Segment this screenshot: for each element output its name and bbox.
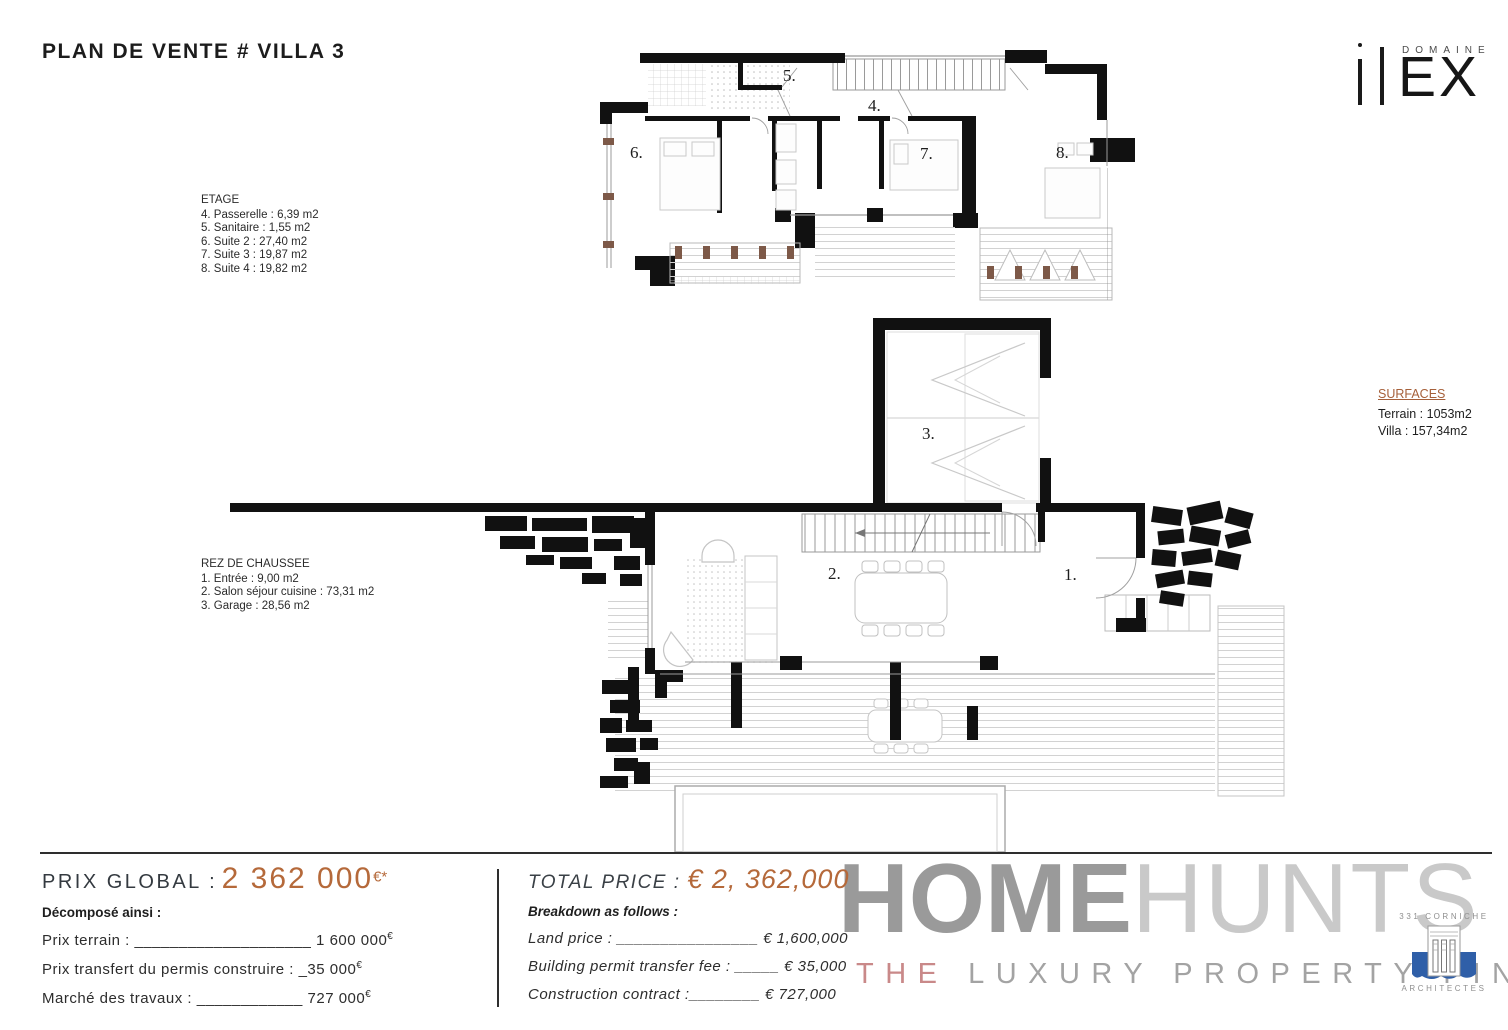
room-label-8: 8. [1056,143,1069,162]
rdc-stairs [802,514,1040,552]
breakdown-sub-heading: Breakdown as follows : [528,904,968,919]
total-price-amount: € 2, 362,000 [687,864,849,894]
room-label-2: 2. [828,564,841,583]
etage-legend-line: 7. Suite 3 : 19,87 m2 [201,249,319,263]
room-label-3: 3. [922,424,935,443]
row-label: Construction contract : [528,986,690,1003]
row-fill: ____________ [197,990,303,1007]
prix-global-currency: €* [373,869,387,886]
etage-legend: ETAGE 4. Passerelle : 6,39 m2 5. Sanitai… [201,194,319,277]
sales-plan-page: PLAN DE VENTE # VILLA 3 DOMAINE EX ETAGE… [0,0,1508,1030]
etage-legend-line: 4. Passerelle : 6,39 m2 [201,209,319,223]
surfaces-terrain: Terrain : 1053m2 [1378,406,1472,424]
rdc-lounge-furniture [664,540,777,666]
etage-balcony-left [670,243,800,284]
row-currency: € [356,960,362,971]
prix-global-amount: 2 362 000 [222,862,373,895]
corniche-building-icon [1412,924,1476,982]
surfaces-panel: SURFACES Terrain : 1053m2 Villa : 157,34… [1378,386,1472,441]
architectes-label: ARCHITECTES [1388,984,1500,993]
rdc-garage [887,332,1039,503]
prix-row-terrain: Prix terrain : ____________________ 1 60… [42,931,487,949]
row-value: 35 000 [307,961,356,978]
room-label-7: 7. [920,144,933,163]
corniche-architectes-logo: 331 CORNICHE ARCHITECTES [1388,912,1500,993]
row-currency: € [387,931,393,942]
corniche-label: 331 CORNICHE [1388,912,1500,921]
room-label-5: 5. [783,66,796,85]
row-currency: € [365,989,371,1000]
ilex-monogram-i-bar [1358,59,1362,105]
prix-global-label: PRIX GLOBAL : [42,871,217,893]
pricing-divider-vertical [497,869,499,1007]
total-price-headline: TOTAL PRICE : € 2, 362,000 [528,864,968,895]
etage-floorplan: 5. 4. 6. 7. 8. [590,28,1170,313]
page-title: PLAN DE VENTE # VILLA 3 [42,40,345,64]
price-row-construction: Construction contract :________ € 727,00… [528,986,968,1003]
room-label-4: 4. [868,96,881,115]
rdc-stone-path-left [485,516,650,586]
etage-legend-line: 6. Suite 2 : 27,40 m2 [201,236,319,250]
row-label: Prix transfert du permis construire : [42,961,299,978]
row-fill: _____ [735,958,779,975]
room-label-6: 6. [630,143,643,162]
prix-row-travaux: Marché des travaux : ____________ 727 00… [42,989,487,1007]
price-row-permit: Building permit transfer fee : _____ € 3… [528,958,968,975]
rdc-floorplan: 3. 2. 1. [230,318,1290,852]
rdc-steps-right [1218,606,1284,796]
total-price-label: TOTAL PRICE : [528,872,687,893]
row-label: Marché des travaux : [42,990,197,1007]
brand-ex-label: EX [1398,49,1480,106]
row-value: 1 600 000 [311,932,387,949]
prix-global-headline: PRIX GLOBAL : 2 362 000€* [42,862,487,896]
etage-deck-center [815,223,955,283]
surfaces-heading: SURFACES [1378,386,1472,404]
row-value: 727 000 [303,990,365,1007]
row-label: Land price : [528,930,617,947]
pricing-french: PRIX GLOBAL : 2 362 000€* Décomposé ains… [42,862,487,1007]
rdc-dining-table [855,561,947,636]
ilex-monogram-l-bar [1380,47,1384,105]
etage-tile-area [648,64,706,106]
prix-sub-heading: Décomposé ainsi : [42,905,487,920]
row-value: € 35,000 [779,958,846,975]
etage-legend-line: 8. Suite 4 : 19,82 m2 [201,263,319,277]
etage-legend-line: 5. Sanitaire : 1,55 m2 [201,222,319,236]
row-label: Building permit transfer fee : [528,958,735,975]
ilex-domaine-logo: DOMAINE EX [1352,33,1502,113]
row-fill: ________________ [617,930,758,947]
prix-row-permis: Prix transfert du permis construire : _3… [42,960,487,978]
rdc-steps-left [608,600,648,662]
ilex-monogram-i-dot [1358,43,1362,47]
room-label-1: 1. [1064,565,1077,584]
surfaces-villa: Villa : 157,34m2 [1378,423,1472,441]
price-row-land: Land price : ________________ € 1,600,00… [528,930,968,947]
pricing-english: TOTAL PRICE : € 2, 362,000 Breakdown as … [528,864,968,1003]
rdc-stone-path-right [1151,501,1254,607]
row-label: Prix terrain : [42,932,135,949]
row-fill: ____________________ [135,932,312,949]
row-value: € 1,600,000 [759,930,848,947]
etage-stairs [833,59,1005,90]
row-value: € 727,000 [760,986,836,1003]
etage-legend-heading: ETAGE [201,194,319,208]
row-fill: ________ [690,986,761,1003]
